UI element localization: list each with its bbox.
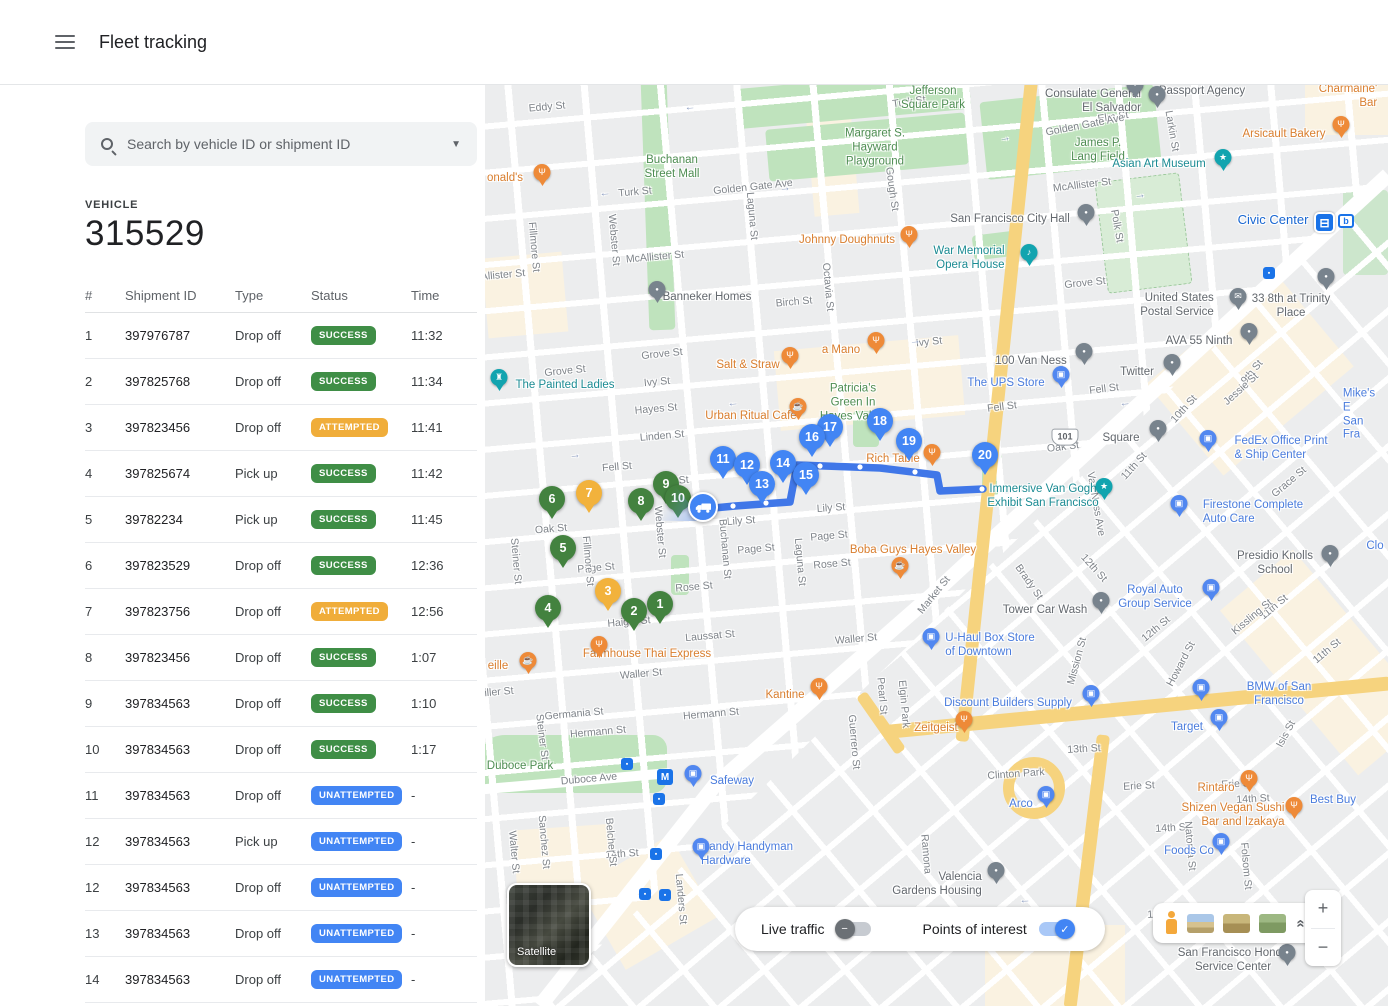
map[interactable]: Eddy StTurk StTurk StElm StGolden Gate A… <box>485 85 1388 1006</box>
dot-icon: ● <box>1328 551 1332 557</box>
vehicle-label: VEHICLE <box>85 199 477 211</box>
cell-num: 1 <box>85 328 125 343</box>
cell-time: - <box>411 926 477 941</box>
search-icon <box>101 138 113 150</box>
map-poi-pin[interactable]: ☕ <box>520 652 537 669</box>
zoom-in-button[interactable]: + <box>1305 890 1341 928</box>
search-box[interactable]: ▼ <box>85 122 477 166</box>
map-poi-pin[interactable]: ▣ <box>1053 366 1070 383</box>
shopping-icon: ▣ <box>1057 370 1066 379</box>
table-header: # Shipment ID Type Status Time <box>85 279 477 313</box>
cell-status: ATTEMPTED <box>311 418 411 437</box>
map-poi-pin[interactable]: Ψ <box>924 444 941 461</box>
status-badge: SUCCESS <box>311 648 376 667</box>
shopping-icon: ▣ <box>1217 837 1226 846</box>
cell-time: 11:32 <box>411 328 477 343</box>
shopping-icon: ▣ <box>1175 499 1184 508</box>
cell-type: Drop off <box>235 604 311 619</box>
map-layer-controls: Live traffic − Points of interest ✓ <box>735 907 1105 951</box>
map-poi-pin[interactable]: ★ <box>1096 478 1113 495</box>
map-poi-pin[interactable]: Ψ <box>591 636 608 653</box>
map-poi-pin[interactable]: ♜ <box>491 369 508 386</box>
map-poi-pin[interactable]: Ψ <box>901 226 918 243</box>
stop-marker-2[interactable]: 2 <box>621 598 647 624</box>
cell-time: 12:36 <box>411 558 477 573</box>
cell-num: 4 <box>85 466 125 481</box>
page-title: Fleet tracking <box>99 32 207 53</box>
street-view-bar: « <box>1153 903 1317 943</box>
map-poi-pin[interactable]: ▣ <box>1083 685 1100 702</box>
transit-icon[interactable]: ▪ <box>650 848 662 860</box>
stop-number: 16 <box>805 430 819 444</box>
cell-shipment-id: 397823529 <box>125 558 235 573</box>
map-poi-pin[interactable]: ● <box>1149 86 1166 103</box>
cell-shipment-id: 397976787 <box>125 328 235 343</box>
table-row[interactable]: 3397823456Drop offATTEMPTED11:41 <box>85 405 477 451</box>
shopping-icon: ▣ <box>697 842 706 851</box>
chevron-down-icon[interactable]: ▼ <box>451 139 461 150</box>
transit-icon[interactable]: ▪ <box>1263 267 1275 279</box>
cell-num: 9 <box>85 696 125 711</box>
stop-number: 11 <box>716 452 729 466</box>
cell-status: SUCCESS <box>311 648 411 667</box>
stop-number: 4 <box>545 601 552 615</box>
map-poi-pin[interactable]: ▣ <box>1193 679 1210 696</box>
cell-status: SUCCESS <box>311 556 411 575</box>
stop-marker-7[interactable]: 7 <box>576 480 602 506</box>
dot-icon: ● <box>1170 360 1174 366</box>
table-row[interactable]: 9397834563Drop offSUCCESS1:10 <box>85 681 477 727</box>
cell-num: 13 <box>85 926 125 941</box>
cell-type: Drop off <box>235 696 311 711</box>
streetview-thumbnail[interactable] <box>1259 914 1286 933</box>
status-badge: SUCCESS <box>311 372 376 391</box>
map-poi-pin[interactable]: ▣ <box>1203 579 1220 596</box>
status-badge: SUCCESS <box>311 464 376 483</box>
stop-marker-16[interactable]: 16 <box>799 424 825 450</box>
cell-status: SUCCESS <box>311 372 411 391</box>
table-row[interactable]: 539782234Pick upSUCCESS11:45 <box>85 497 477 543</box>
stop-number: 5 <box>560 541 567 555</box>
col-status: Status <box>311 288 411 303</box>
status-badge: UNATTEMPTED <box>311 786 402 805</box>
map-poi-pin[interactable]: ● <box>1279 944 1296 961</box>
map-poi-pin[interactable]: Ψ <box>956 711 973 728</box>
transit-icon[interactable]: ▪ <box>653 793 665 805</box>
satellite-toggle[interactable]: Satellite <box>507 883 591 967</box>
cell-shipment-id: 397834563 <box>125 880 235 895</box>
table-row[interactable]: 12397834563Pick upUNATTEMPTED- <box>85 819 477 865</box>
map-poi-pin[interactable]: ● <box>1322 545 1339 562</box>
status-badge: UNATTEMPTED <box>311 924 402 943</box>
stop-marker-19[interactable]: 19 <box>896 428 922 454</box>
cell-status: SUCCESS <box>311 510 411 529</box>
cell-time: - <box>411 880 477 895</box>
stop-marker-5[interactable]: 5 <box>550 535 576 561</box>
cell-time: - <box>411 788 477 803</box>
shipment-table-body: 1397976787Drop offSUCCESS11:322397825768… <box>85 313 477 1003</box>
cell-shipment-id: 397834563 <box>125 972 235 987</box>
castle-icon: ♜ <box>495 373 503 382</box>
points-of-interest-toggle[interactable]: ✓ <box>1039 922 1073 936</box>
status-badge: SUCCESS <box>311 556 376 575</box>
cell-status: ATTEMPTED <box>311 602 411 621</box>
live-traffic-label: Live traffic <box>761 921 825 937</box>
cell-shipment-id: 397834563 <box>125 696 235 711</box>
stop-marker-18[interactable]: 18 <box>867 408 893 434</box>
transit-icon[interactable]: ▪ <box>659 889 671 901</box>
stop-marker-8[interactable]: 8 <box>628 488 654 514</box>
table-row[interactable]: 4397825674Pick upSUCCESS11:42 <box>85 451 477 497</box>
map-poi-pin[interactable]: ● <box>1078 204 1095 221</box>
dot-icon: ● <box>1084 210 1088 216</box>
map-poi-pin[interactable]: Ψ <box>811 678 828 695</box>
cell-time: 11:41 <box>411 420 477 435</box>
cell-time: 1:17 <box>411 742 477 757</box>
stop-marker-14[interactable]: 14 <box>770 450 796 476</box>
truck-icon[interactable] <box>688 492 718 522</box>
map-poi-pin[interactable]: ▣ <box>1171 495 1188 512</box>
cell-shipment-id: 397823456 <box>125 420 235 435</box>
map-poi-pin[interactable]: Ψ <box>782 347 799 364</box>
stop-number: 14 <box>776 456 790 470</box>
cell-type: Pick up <box>235 834 311 849</box>
restaurant-icon: Ψ <box>1245 774 1253 783</box>
pegman-icon[interactable] <box>1165 911 1178 935</box>
dot-icon: ● <box>1156 426 1160 432</box>
transit-icon[interactable]: ⊟ <box>1314 212 1335 233</box>
cell-num: 12 <box>85 880 125 895</box>
cell-time: 11:34 <box>411 374 477 389</box>
stop-number: 20 <box>978 448 992 462</box>
table-row[interactable]: 13397834563Drop offUNATTEMPTED- <box>85 911 477 957</box>
stop-marker-20[interactable]: 20 <box>972 442 998 468</box>
app-header: Fleet tracking <box>0 0 1388 85</box>
table-row[interactable]: 10397834563Drop offSUCCESS1:17 <box>85 727 477 773</box>
map-poi-pin[interactable]: ▣ <box>693 838 710 855</box>
cell-num: 14 <box>85 972 125 987</box>
cell-num: 7 <box>85 604 125 619</box>
cell-type: Drop off <box>235 926 311 941</box>
satellite-label: Satellite <box>517 946 556 958</box>
stop-number: 3 <box>605 584 612 598</box>
map-poi-pin[interactable]: ▣ <box>1200 430 1217 447</box>
cell-shipment-id: 397823456 <box>125 650 235 665</box>
stop-number: 8 <box>638 494 645 508</box>
map-poi-pin[interactable]: ♪ <box>1021 244 1038 261</box>
map-poi-pin[interactable]: ✉ <box>1230 288 1247 305</box>
stop-number: 18 <box>873 414 887 428</box>
table-row[interactable]: 2397825768Drop offSUCCESS11:34 <box>85 359 477 405</box>
cell-type: Drop off <box>235 558 311 573</box>
mail-icon: ✉ <box>1234 292 1242 301</box>
vehicle-id: 315529 <box>85 214 477 254</box>
map-poi-pin[interactable]: Ψ <box>1241 770 1258 787</box>
shopping-icon: ▣ <box>689 769 698 778</box>
map-poi-pin[interactable]: ● <box>988 862 1005 879</box>
cell-time: - <box>411 834 477 849</box>
cell-type: Drop off <box>235 650 311 665</box>
zoom-out-button[interactable]: − <box>1305 929 1341 967</box>
map-poi-pin[interactable]: ▣ <box>923 628 940 645</box>
restaurant-icon: Ψ <box>786 351 794 360</box>
map-poi-pin[interactable]: Ψ <box>534 164 551 181</box>
dot-icon: ● <box>655 287 659 293</box>
cell-num: 10 <box>85 742 125 757</box>
table-row[interactable]: 7397823756Drop offATTEMPTED12:56 <box>85 589 477 635</box>
cell-type: Drop off <box>235 374 311 389</box>
map-poi-pin[interactable]: ● <box>1150 420 1167 437</box>
table-row[interactable]: 6397823529Drop offSUCCESS12:36 <box>85 543 477 589</box>
cell-time: 12:56 <box>411 604 477 619</box>
cell-type: Drop off <box>235 972 311 987</box>
map-poi-pin[interactable]: ☕ <box>790 398 807 415</box>
cell-num: 5 <box>85 512 125 527</box>
shopping-icon: ▣ <box>1204 434 1213 443</box>
table-row[interactable]: 11397834563Drop offUNATTEMPTED- <box>85 773 477 819</box>
cell-type: Drop off <box>235 880 311 895</box>
stop-number: 12 <box>740 458 754 472</box>
table-row[interactable]: 8397823456Drop offSUCCESS1:07 <box>85 635 477 681</box>
search-input[interactable] <box>127 136 451 152</box>
cell-status: UNATTEMPTED <box>311 786 411 805</box>
stop-number: 15 <box>799 468 813 482</box>
sidebar: ▼ VEHICLE 315529 # Shipment ID Type Stat… <box>0 85 485 1006</box>
shopping-icon: ▣ <box>1207 583 1216 592</box>
shopping-icon: ▣ <box>1087 689 1096 698</box>
map-poi-pin[interactable]: ● <box>1318 268 1335 285</box>
dot-icon: ● <box>994 868 998 874</box>
cell-num: 11 <box>85 788 125 803</box>
stop-number: 19 <box>902 434 916 448</box>
cell-status: SUCCESS <box>311 740 411 759</box>
cell-shipment-id: 397834563 <box>125 834 235 849</box>
cell-time: 11:45 <box>411 512 477 527</box>
map-poi-pin[interactable]: ● <box>1164 354 1181 371</box>
cell-num: 3 <box>85 420 125 435</box>
restaurant-icon: Ψ <box>1290 801 1298 810</box>
star-icon: ★ <box>1100 482 1108 491</box>
cell-time: 1:10 <box>411 696 477 711</box>
stop-marker-13[interactable]: 13 <box>749 471 775 497</box>
stop-number: 2 <box>631 604 638 618</box>
cell-shipment-id: 39782234 <box>125 512 235 527</box>
col-num: # <box>85 288 125 303</box>
cell-type: Drop off <box>235 788 311 803</box>
col-time: Time <box>411 288 477 303</box>
cell-type: Pick up <box>235 466 311 481</box>
cell-shipment-id: 397834563 <box>125 926 235 941</box>
map-poi-pin[interactable]: ☕ <box>892 557 909 574</box>
restaurant-icon: Ψ <box>538 168 546 177</box>
map-poi-pin[interactable]: ● <box>1093 592 1110 609</box>
dot-icon: ● <box>1285 950 1289 956</box>
stop-marker-6[interactable]: 6 <box>539 486 565 512</box>
stop-number: 6 <box>549 492 556 506</box>
cell-type: Drop off <box>235 420 311 435</box>
stop-number: 1 <box>657 597 664 611</box>
col-shipment-id: Shipment ID <box>125 288 235 303</box>
table-row[interactable]: 14397834563Drop offUNATTEMPTED- <box>85 957 477 1003</box>
dot-icon: ● <box>1155 92 1159 98</box>
cell-type: Drop off <box>235 742 311 757</box>
status-badge: UNATTEMPTED <box>311 970 402 989</box>
cell-time: - <box>411 972 477 987</box>
points-of-interest-label: Points of interest <box>923 921 1027 937</box>
live-traffic-toggle[interactable]: − <box>837 922 871 936</box>
map-poi-pin[interactable]: ● <box>1127 85 1144 93</box>
stop-marker-1[interactable]: 1 <box>647 591 673 617</box>
cafe-icon: ☕ <box>522 656 533 665</box>
status-badge: UNATTEMPTED <box>311 832 402 851</box>
restaurant-icon: Ψ <box>928 448 936 457</box>
map-poi-pin[interactable]: ★ <box>1215 149 1232 166</box>
shopping-icon: ▣ <box>1197 683 1206 692</box>
restaurant-icon: Ψ <box>815 682 823 691</box>
restaurant-icon: Ψ <box>595 640 603 649</box>
status-badge: ATTEMPTED <box>311 602 388 621</box>
stop-marker-4[interactable]: 4 <box>535 595 561 621</box>
shopping-icon: ▣ <box>1215 713 1224 722</box>
transit-icon[interactable]: M <box>657 769 673 785</box>
cell-time: 1:07 <box>411 650 477 665</box>
map-poi-pin[interactable]: ▣ <box>1038 786 1055 803</box>
zoom-control: + − <box>1305 890 1341 966</box>
cell-num: 2 <box>85 374 125 389</box>
map-poi-pin[interactable]: Ψ <box>868 332 885 349</box>
cell-shipment-id: 397825768 <box>125 374 235 389</box>
star-icon: ★ <box>1219 153 1227 162</box>
cell-status: UNATTEMPTED <box>311 970 411 989</box>
dot-icon: ● <box>1099 598 1103 604</box>
dot-icon: ● <box>1324 274 1328 280</box>
shopping-icon: ▣ <box>1042 790 1051 799</box>
cell-status: UNATTEMPTED <box>311 924 411 943</box>
map-poi-pin[interactable]: ● <box>649 281 666 298</box>
map-poi-pin[interactable]: Ψ <box>1333 116 1350 133</box>
cell-status: SUCCESS <box>311 464 411 483</box>
status-badge: SUCCESS <box>311 740 376 759</box>
map-poi-pin[interactable]: ▣ <box>685 765 702 782</box>
cell-status: UNATTEMPTED <box>311 832 411 851</box>
cell-shipment-id: 397825674 <box>125 466 235 481</box>
music-icon: ♪ <box>1027 248 1032 257</box>
stop-marker-3[interactable]: 3 <box>595 578 621 604</box>
streetview-thumbnail[interactable] <box>1223 914 1250 933</box>
transit-icon[interactable]: ▪ <box>621 758 633 770</box>
cell-time: 11:42 <box>411 466 477 481</box>
map-poi-pin[interactable]: Ψ <box>1286 797 1303 814</box>
stop-marker-15[interactable]: 15 <box>793 462 819 488</box>
col-type: Type <box>235 288 311 303</box>
dot-icon: ● <box>1133 85 1137 88</box>
cell-shipment-id: 397834563 <box>125 788 235 803</box>
restaurant-icon: Ψ <box>872 336 880 345</box>
cell-num: 12 <box>85 834 125 849</box>
cell-status: SUCCESS <box>311 694 411 713</box>
cell-status: SUCCESS <box>311 326 411 345</box>
map-poi-pin[interactable]: ▣ <box>1211 709 1228 726</box>
transit-icon[interactable]: b <box>1338 214 1354 228</box>
cell-shipment-id: 397834563 <box>125 742 235 757</box>
table-row[interactable]: 12397834563Drop offUNATTEMPTED- <box>85 865 477 911</box>
cell-type: Drop off <box>235 328 311 343</box>
transit-icon[interactable]: ▪ <box>639 888 651 900</box>
restaurant-icon: Ψ <box>1337 120 1345 129</box>
shopping-icon: ▣ <box>927 632 936 641</box>
restaurant-icon: Ψ <box>960 715 968 724</box>
status-badge: UNATTEMPTED <box>311 878 402 897</box>
restaurant-icon: Ψ <box>905 230 913 239</box>
streetview-thumbnail[interactable] <box>1187 914 1214 933</box>
cafe-icon: ☕ <box>792 402 803 411</box>
shipment-table: # Shipment ID Type Status Time 139797678… <box>85 279 477 1003</box>
cell-type: Pick up <box>235 512 311 527</box>
dot-icon: ● <box>1247 329 1251 335</box>
stop-number: 7 <box>586 486 593 500</box>
stop-number: 13 <box>755 477 769 491</box>
table-row[interactable]: 1397976787Drop offSUCCESS11:32 <box>85 313 477 359</box>
dot-icon: ● <box>1082 349 1086 355</box>
cell-num: 6 <box>85 558 125 573</box>
status-badge: SUCCESS <box>311 326 376 345</box>
menu-icon[interactable] <box>55 35 75 49</box>
status-badge: SUCCESS <box>311 694 376 713</box>
status-badge: SUCCESS <box>311 510 376 529</box>
cell-status: UNATTEMPTED <box>311 878 411 897</box>
cell-num: 8 <box>85 650 125 665</box>
map-pins-layer: ΨΨ●♜ΨΨ☕Ψ☕★▣●●●●▣▣●▣●▣▣ΨΨΨ☕▣▣▣▣Ψ▣●▣Ψ●●●Ψ✉… <box>485 85 1388 1006</box>
cell-shipment-id: 397823756 <box>125 604 235 619</box>
map-poi-pin[interactable]: ● <box>1241 323 1258 340</box>
stop-number: 17 <box>823 420 837 434</box>
map-poi-pin[interactable]: ● <box>1076 343 1093 360</box>
cafe-icon: ☕ <box>894 561 905 570</box>
map-poi-pin[interactable]: ▣ <box>1213 833 1230 850</box>
status-badge: ATTEMPTED <box>311 418 388 437</box>
stop-marker-11[interactable]: 11 <box>710 446 736 472</box>
